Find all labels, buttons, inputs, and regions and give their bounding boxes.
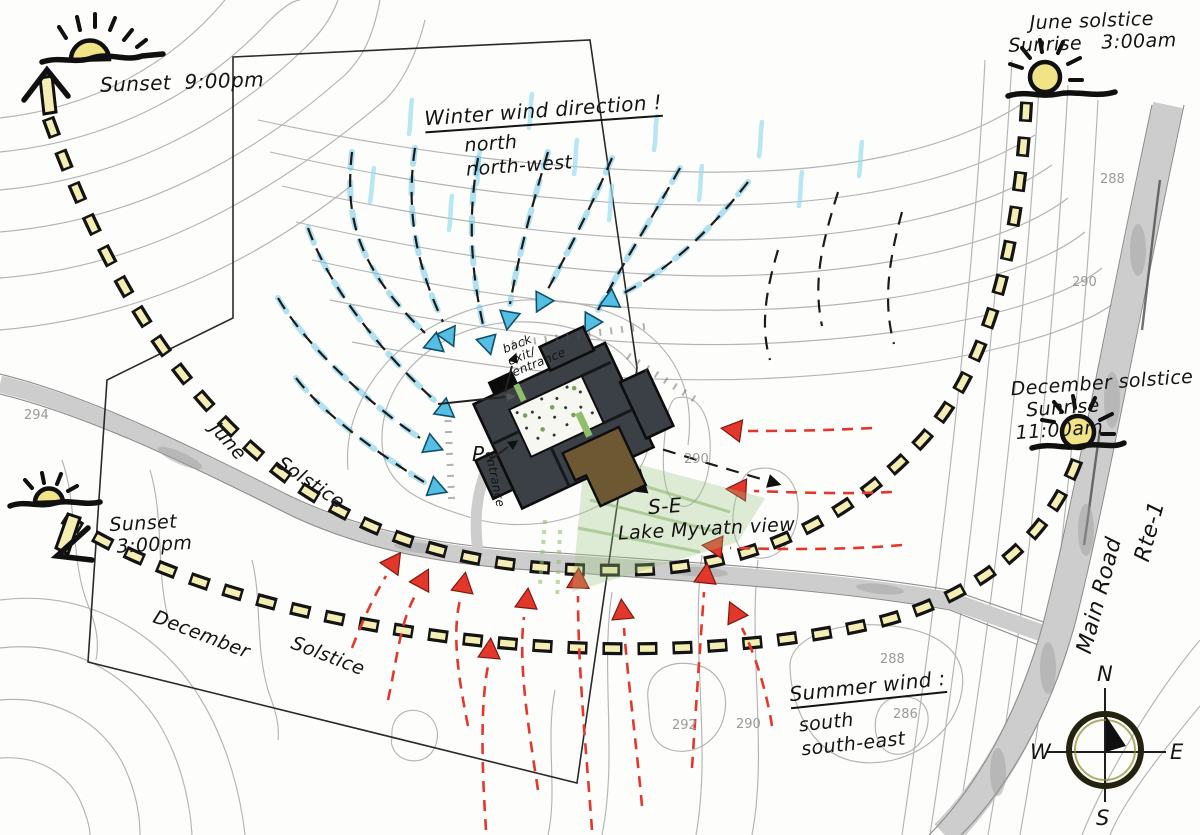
contour-line xyxy=(0,0,380,232)
contour-line xyxy=(252,560,278,740)
wind-arrowhead-icon xyxy=(422,434,446,459)
wind-streak xyxy=(449,196,452,230)
wind-arrowhead-icon xyxy=(497,310,520,331)
sunset-time: 9:00pm xyxy=(184,67,264,94)
sun-ray xyxy=(124,30,132,40)
compass-west-label: W xyxy=(1030,740,1051,764)
contour-line xyxy=(0,647,192,835)
hatch-ticks xyxy=(448,420,452,508)
contour-line xyxy=(648,663,726,751)
wind-curl xyxy=(888,212,902,344)
june-sunrise-label: June solstice Sunrise 3:00am xyxy=(1007,7,1177,57)
sun-ray xyxy=(59,27,66,38)
wind-streak xyxy=(859,142,862,176)
wind-streak xyxy=(699,166,702,200)
northwest-direction-arrow-icon xyxy=(24,70,68,114)
wind-arrowhead-icon xyxy=(427,477,451,502)
southwest-direction-arrow-icon xyxy=(56,514,92,560)
wind-flow-line xyxy=(456,600,468,726)
site-analysis-map: Sunset 9:00pm June solstice Sunrise 3:00… xyxy=(0,0,1200,835)
sunrise-time: 3:00am xyxy=(1101,29,1177,54)
sun-ray xyxy=(137,40,146,47)
wind-flow-line xyxy=(578,596,592,830)
wind-arrowhead-icon xyxy=(720,417,743,442)
wind-flow-line xyxy=(483,666,489,830)
contour-line xyxy=(0,699,140,835)
wind-flow-line xyxy=(748,428,872,431)
contour-elevation-label: 290 xyxy=(1072,275,1097,290)
contour-elevation-label: 288 xyxy=(1100,172,1125,187)
sun-ray xyxy=(77,17,80,30)
wind-arrowhead-icon xyxy=(528,291,554,316)
wind-arrowhead-icon xyxy=(476,334,500,357)
wind-streak xyxy=(409,100,412,134)
wind-arrowhead-icon xyxy=(610,598,634,620)
contour-line xyxy=(391,710,437,761)
december-sunrise-label: December solstice Sunrise 11:00am xyxy=(1010,366,1197,445)
sun-ray xyxy=(1068,58,1080,64)
contour-elevation-label: 292 xyxy=(672,718,697,733)
road-texture xyxy=(1040,642,1056,694)
wind-flow-line xyxy=(352,576,386,648)
sun-december-sunset-icon xyxy=(10,473,100,506)
view-direction-label: S-E xyxy=(647,493,682,519)
sun-ray xyxy=(57,474,61,484)
wind-arrowhead-icon xyxy=(409,564,438,592)
contour-elevation-label: 290 xyxy=(684,452,709,467)
summer-wind-note: Summer wind : south south-east xyxy=(788,666,952,761)
horizon-line xyxy=(1008,92,1115,96)
sun-circle-icon xyxy=(1030,62,1060,92)
view-arrowhead-icon xyxy=(766,474,783,491)
contour-line xyxy=(548,690,555,835)
compass-rose xyxy=(1046,688,1166,802)
contour-line xyxy=(0,185,352,330)
contour-elevation-label: 294 xyxy=(24,408,49,423)
road-texture xyxy=(990,748,1006,796)
sun-june-sunset-icon xyxy=(42,14,163,62)
sun-ray xyxy=(42,473,44,483)
wind-flow-line xyxy=(388,594,416,700)
december-sunset-label: Sunset 3:00pm xyxy=(109,510,193,558)
sunset-word: Sunset xyxy=(100,70,172,96)
wind-arrowhead-icon xyxy=(720,597,748,624)
horizon-line xyxy=(10,502,100,506)
sunrise-word: Sunrise xyxy=(1008,32,1082,57)
wind-arrowhead-icon xyxy=(451,570,476,594)
road-texture xyxy=(1130,224,1146,276)
contour-line xyxy=(282,165,1052,240)
wind-streak xyxy=(799,172,802,206)
sun-ray xyxy=(110,18,115,30)
compass-north-label: N xyxy=(1097,662,1113,686)
sun-ray xyxy=(25,480,32,488)
compass-east-label: E xyxy=(1170,740,1183,764)
road-edge xyxy=(929,105,1152,835)
wind-arrowhead-icon xyxy=(515,587,539,609)
wind-streak xyxy=(759,122,762,156)
contour-elevation-label: 290 xyxy=(736,717,761,732)
contour-line xyxy=(0,758,90,835)
wind-streak xyxy=(609,186,612,220)
road-texture xyxy=(1078,504,1094,556)
contour-elevation-label: 288 xyxy=(880,652,905,667)
contour-line xyxy=(752,560,758,835)
contour-elevation-label: 286 xyxy=(893,707,918,722)
sunset-time: 3:00pm xyxy=(116,532,193,558)
contour-line xyxy=(602,592,612,835)
contour-line xyxy=(696,555,702,835)
grass-marks xyxy=(540,520,545,585)
compass-south-label: S xyxy=(1096,806,1109,830)
contour-line xyxy=(352,300,1118,380)
